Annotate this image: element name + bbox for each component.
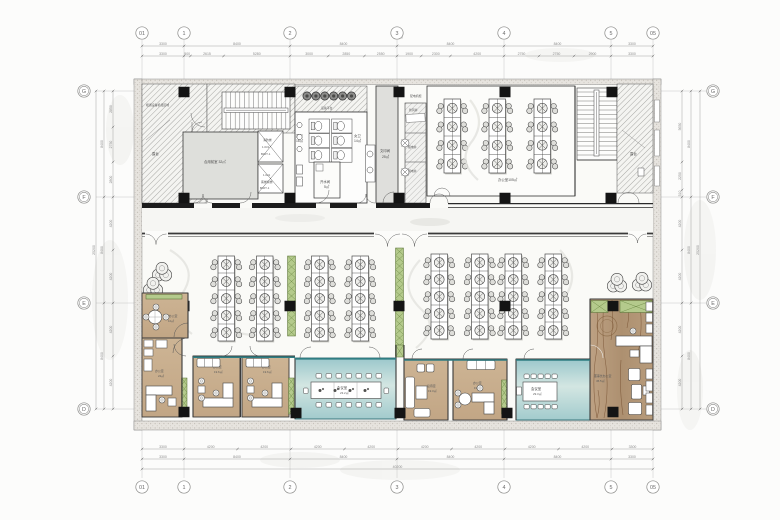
svg-text:8400: 8400 bbox=[100, 140, 104, 148]
svg-text:3300: 3300 bbox=[159, 455, 167, 459]
svg-text:8400: 8400 bbox=[233, 42, 241, 46]
svg-text:4200: 4200 bbox=[581, 445, 589, 449]
svg-text:5㎡: 5㎡ bbox=[324, 184, 330, 189]
svg-text:E: E bbox=[82, 301, 86, 307]
svg-text:510: 510 bbox=[678, 191, 682, 197]
svg-text:19.6㎡: 19.6㎡ bbox=[263, 369, 272, 374]
svg-text:E: E bbox=[711, 301, 715, 307]
svg-text:G: G bbox=[82, 89, 86, 95]
svg-text:2615: 2615 bbox=[203, 52, 211, 56]
svg-text:2850: 2850 bbox=[109, 105, 113, 113]
svg-text:8400: 8400 bbox=[687, 140, 691, 148]
svg-text:8400: 8400 bbox=[687, 246, 691, 254]
svg-text:8400: 8400 bbox=[340, 42, 348, 46]
svg-text:女卫: 女卫 bbox=[354, 133, 361, 138]
svg-text:3300: 3300 bbox=[629, 445, 637, 449]
svg-text:2900: 2900 bbox=[589, 52, 597, 56]
svg-text:4200: 4200 bbox=[314, 445, 322, 449]
svg-text:会议室: 会议室 bbox=[337, 385, 348, 390]
svg-text:露台: 露台 bbox=[630, 151, 637, 156]
svg-text:4200: 4200 bbox=[474, 445, 482, 449]
svg-text:05: 05 bbox=[650, 31, 656, 37]
svg-text:D: D bbox=[711, 407, 715, 413]
svg-text:10㎡: 10㎡ bbox=[168, 318, 174, 323]
svg-text:3300: 3300 bbox=[159, 52, 167, 56]
svg-text:开水间: 开水间 bbox=[320, 179, 331, 184]
svg-text:2850: 2850 bbox=[342, 52, 350, 56]
svg-text:8400: 8400 bbox=[100, 352, 104, 360]
svg-text:19.3㎡: 19.3㎡ bbox=[428, 388, 437, 393]
svg-text:董事长办公室: 董事长办公室 bbox=[594, 373, 611, 378]
svg-text:3300: 3300 bbox=[628, 455, 636, 459]
svg-text:8400: 8400 bbox=[687, 352, 691, 360]
svg-text:设备平台: 设备平台 bbox=[321, 105, 333, 110]
svg-text:消防梯: 消防梯 bbox=[263, 137, 272, 142]
svg-text:500: 500 bbox=[184, 52, 190, 56]
svg-text:3300: 3300 bbox=[628, 42, 636, 46]
svg-text:1: 1 bbox=[183, 31, 186, 37]
svg-text:3: 3 bbox=[396, 31, 399, 37]
svg-text:2250: 2250 bbox=[678, 172, 682, 180]
svg-text:5280: 5280 bbox=[253, 52, 261, 56]
svg-text:25㎡: 25㎡ bbox=[382, 154, 390, 159]
svg-text:2: 2 bbox=[289, 485, 292, 491]
svg-text:暖通设备机组区域: 暖通设备机组区域 bbox=[146, 102, 169, 107]
svg-text:5: 5 bbox=[610, 31, 613, 37]
svg-text:4200: 4200 bbox=[473, 52, 481, 56]
svg-text:1: 1 bbox=[183, 485, 186, 491]
svg-text:办公室: 办公室 bbox=[155, 368, 164, 373]
svg-text:2750: 2750 bbox=[553, 52, 561, 56]
svg-text:3300: 3300 bbox=[628, 52, 636, 56]
svg-text:G: G bbox=[711, 89, 715, 95]
svg-text:8400: 8400 bbox=[447, 455, 455, 459]
svg-text:办公室105㎡: 办公室105㎡ bbox=[498, 177, 518, 182]
svg-text:8400: 8400 bbox=[554, 42, 562, 46]
svg-text:01: 01 bbox=[139, 485, 145, 491]
svg-text:4200: 4200 bbox=[260, 445, 268, 449]
svg-text:01: 01 bbox=[139, 31, 145, 37]
svg-text:4200: 4200 bbox=[109, 379, 113, 387]
svg-text:22㎡: 22㎡ bbox=[158, 373, 164, 378]
svg-text:4: 4 bbox=[503, 31, 506, 37]
svg-text:4200: 4200 bbox=[528, 445, 536, 449]
svg-text:8400: 8400 bbox=[447, 42, 455, 46]
svg-text:2750: 2750 bbox=[518, 52, 526, 56]
svg-text:5650: 5650 bbox=[678, 123, 682, 131]
svg-text:8400: 8400 bbox=[554, 455, 562, 459]
svg-text:5: 5 bbox=[610, 485, 613, 491]
svg-text:25200: 25200 bbox=[696, 245, 700, 255]
svg-text:1.0t/1: 1.0t/1 bbox=[262, 145, 270, 149]
svg-text:B40T-1: B40T-1 bbox=[261, 152, 271, 156]
svg-text:4200: 4200 bbox=[207, 445, 215, 449]
svg-text:4200: 4200 bbox=[109, 220, 113, 228]
svg-text:2300: 2300 bbox=[432, 52, 440, 56]
svg-text:4200: 4200 bbox=[421, 445, 429, 449]
svg-text:8400: 8400 bbox=[100, 246, 104, 254]
svg-text:19.6㎡: 19.6㎡ bbox=[214, 369, 223, 374]
svg-text:合用前室 32㎡: 合用前室 32㎡ bbox=[204, 159, 226, 164]
svg-text:8400: 8400 bbox=[233, 455, 241, 459]
svg-text:29.3㎡: 29.3㎡ bbox=[533, 391, 542, 396]
svg-text:40200: 40200 bbox=[393, 465, 403, 469]
svg-text:05: 05 bbox=[650, 485, 656, 491]
svg-text:强电井: 强电井 bbox=[408, 144, 417, 149]
svg-text:B40T-1: B40T-1 bbox=[260, 186, 270, 190]
svg-text:25200: 25200 bbox=[92, 245, 96, 255]
svg-text:新风井: 新风井 bbox=[409, 107, 418, 112]
svg-text:3300: 3300 bbox=[159, 42, 167, 46]
svg-text:4200: 4200 bbox=[678, 326, 682, 334]
svg-text:2: 2 bbox=[289, 31, 292, 37]
svg-text:弱电井: 弱电井 bbox=[408, 168, 417, 173]
svg-text:3: 3 bbox=[396, 485, 399, 491]
svg-text:客梯候梯: 客梯候梯 bbox=[261, 179, 273, 184]
svg-text:接待室: 接待室 bbox=[427, 383, 436, 388]
svg-text:会议室: 会议室 bbox=[531, 386, 542, 391]
svg-text:文印间: 文印间 bbox=[380, 148, 391, 153]
svg-text:14㎡: 14㎡ bbox=[354, 138, 362, 143]
svg-text:2550: 2550 bbox=[377, 52, 385, 56]
svg-text:4200: 4200 bbox=[109, 326, 113, 334]
svg-text:2800: 2800 bbox=[109, 176, 113, 184]
svg-text:办公室: 办公室 bbox=[473, 380, 482, 385]
svg-text:1.0t/1: 1.0t/1 bbox=[263, 173, 271, 177]
svg-text:配电机柜: 配电机柜 bbox=[410, 93, 422, 98]
svg-text:2750: 2750 bbox=[109, 141, 113, 149]
svg-text:8400: 8400 bbox=[340, 455, 348, 459]
svg-text:3300: 3300 bbox=[159, 445, 167, 449]
svg-text:D: D bbox=[82, 407, 86, 413]
svg-text:1900: 1900 bbox=[405, 52, 413, 56]
svg-text:4200: 4200 bbox=[678, 273, 682, 281]
svg-text:3000: 3000 bbox=[305, 52, 313, 56]
svg-text:4200: 4200 bbox=[678, 379, 682, 387]
svg-text:23.2㎡: 23.2㎡ bbox=[340, 390, 349, 395]
svg-text:4200: 4200 bbox=[678, 220, 682, 228]
svg-text:45.5㎡: 45.5㎡ bbox=[596, 378, 605, 383]
svg-text:4200: 4200 bbox=[109, 273, 113, 281]
svg-text:4200: 4200 bbox=[367, 445, 375, 449]
svg-text:露台: 露台 bbox=[152, 151, 159, 156]
svg-text:4: 4 bbox=[503, 485, 506, 491]
